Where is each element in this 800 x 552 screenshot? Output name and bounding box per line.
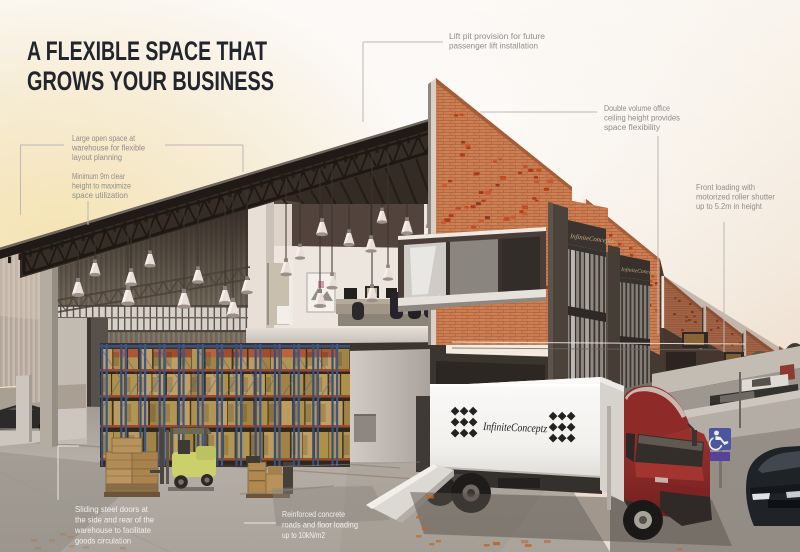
svg-text:InfiniteConceptz: InfiniteConceptz: [482, 421, 548, 435]
svg-text:A FLEXIBLE SPACE THAT: A FLEXIBLE SPACE THAT: [27, 36, 267, 66]
svg-text:GROWS YOUR BUSINESS: GROWS YOUR BUSINESS: [27, 66, 274, 96]
svg-text:Lift pit provision for futurep: Lift pit provision for futurepassenger l…: [449, 31, 545, 50]
svg-text:Minimum 9m clearheight to maxi: Minimum 9m clearheight to maximizespace …: [72, 171, 131, 200]
